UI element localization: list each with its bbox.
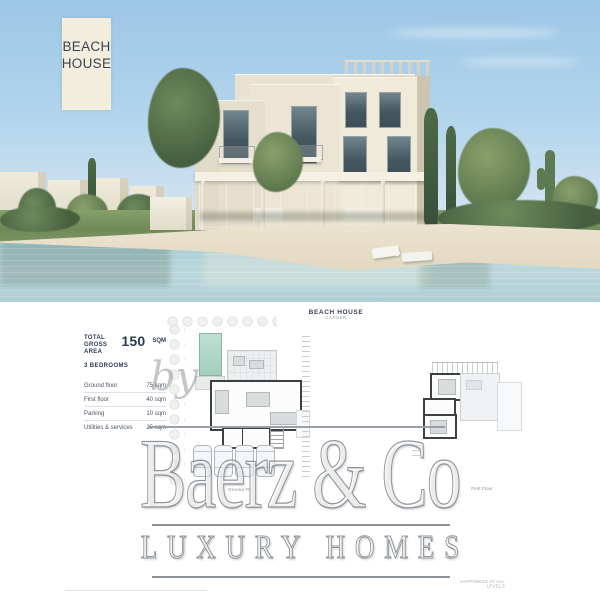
total-label-line1: TOTAL — [84, 335, 114, 342]
terrace-sofa — [233, 356, 245, 366]
villa-shadow — [200, 212, 440, 221]
spec-head: TOTAL GROSS AREA 150 SQM — [84, 335, 166, 356]
car — [235, 445, 254, 477]
badge-line1: BEACH — [62, 38, 110, 55]
row-label: Ground floor — [84, 383, 117, 389]
column — [381, 181, 385, 230]
row-label: Parking — [84, 411, 104, 417]
bedroom-1 — [430, 373, 464, 401]
terrace-table — [249, 360, 264, 369]
roof-wing — [497, 382, 522, 431]
column — [201, 181, 205, 230]
sheet-subtitle: GARDEN — [312, 316, 360, 320]
villa — [195, 58, 435, 230]
table-row: First floor 40 sqm — [84, 393, 166, 407]
ground-plan-label: Ground Flr. — [212, 488, 268, 493]
total-area-unit: SQM — [152, 338, 166, 344]
watermark-rule-bottom — [152, 576, 450, 578]
exterior-render: BEACH HOUSE — [0, 0, 600, 302]
row-value: 75 sqm — [146, 383, 166, 389]
ground-floor-plan — [165, 314, 313, 526]
first-floor-plan — [410, 352, 525, 462]
terrace-canopy — [195, 172, 431, 181]
bedrooms-label: 3 BEDROOMS — [84, 363, 166, 369]
dining-table — [246, 392, 270, 407]
row-label: First floor — [84, 397, 109, 403]
sofa — [215, 390, 229, 414]
swimming-pool — [199, 333, 222, 376]
site-boundary — [302, 332, 310, 477]
total-gross-area-label: TOTAL GROSS AREA — [84, 335, 114, 356]
side-table — [394, 250, 400, 256]
gate-structure — [150, 197, 192, 230]
total-area-value: 150 — [121, 335, 145, 348]
row-value: 10 sqm — [146, 411, 166, 417]
footer-line — [65, 590, 207, 591]
row-label: Utilities & services — [84, 425, 133, 431]
roof-pergola-plan — [432, 362, 498, 373]
floorplan-sheet: BEACH HOUSE GARDEN TOTAL GROSS AREA 150 … — [0, 302, 600, 600]
watermark-tagline: LUXURY HOMES — [60, 531, 540, 565]
table-row: Ground floor 75 sqm — [84, 379, 166, 393]
open-terrace — [460, 373, 500, 421]
column — [321, 181, 325, 230]
row-value: 40 sqm — [146, 397, 166, 403]
car — [214, 445, 233, 477]
cloud — [460, 58, 580, 66]
balcony-slab — [219, 158, 253, 163]
table-row: Parking 10 sqm — [84, 407, 166, 421]
cloud — [390, 28, 560, 38]
garden-trees-left — [167, 322, 185, 487]
beach-house-badge: BEACH HOUSE — [62, 18, 111, 110]
kitchen-counter — [270, 412, 298, 425]
developer-tagline: HAPPINESS AT ALL LEVELS — [441, 580, 505, 589]
living-room — [210, 380, 302, 431]
total-label-line2: GROSS AREA — [84, 342, 114, 356]
terrace-sofa — [466, 380, 482, 390]
car — [256, 445, 275, 477]
window — [379, 92, 401, 128]
ground-floor-glazing — [199, 182, 427, 228]
divider-line — [148, 426, 445, 428]
cypress-tree — [424, 108, 438, 228]
edge-hatch — [412, 444, 420, 456]
listing-image: BEACH HOUSE BEACH HOUSE GARDEN TOTAL GRO… — [0, 0, 600, 600]
first-plan-label: First Floor — [454, 487, 510, 492]
cactus-arm — [537, 168, 545, 190]
bed — [438, 379, 456, 395]
badge-line2: HOUSE — [62, 55, 112, 72]
spec-block: TOTAL GROSS AREA 150 SQM 3 BEDROOMS Grou… — [84, 335, 166, 434]
window — [345, 92, 367, 128]
car — [193, 445, 212, 477]
